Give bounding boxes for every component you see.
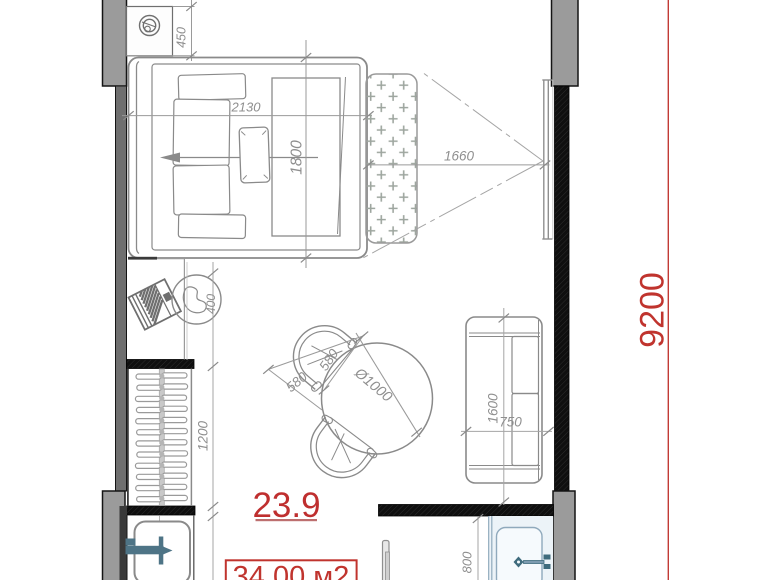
svg-text:9200: 9200 [634,272,672,348]
svg-text:34.00 м2: 34.00 м2 [233,561,350,580]
svg-text:400: 400 [204,294,218,314]
svg-text:1200: 1200 [196,420,211,451]
svg-text:800: 800 [460,551,475,573]
svg-text:1800: 1800 [289,140,306,175]
svg-text:2130: 2130 [231,100,262,115]
svg-text:750: 750 [499,415,522,430]
svg-text:1660: 1660 [444,149,475,164]
svg-text:450: 450 [175,27,189,48]
